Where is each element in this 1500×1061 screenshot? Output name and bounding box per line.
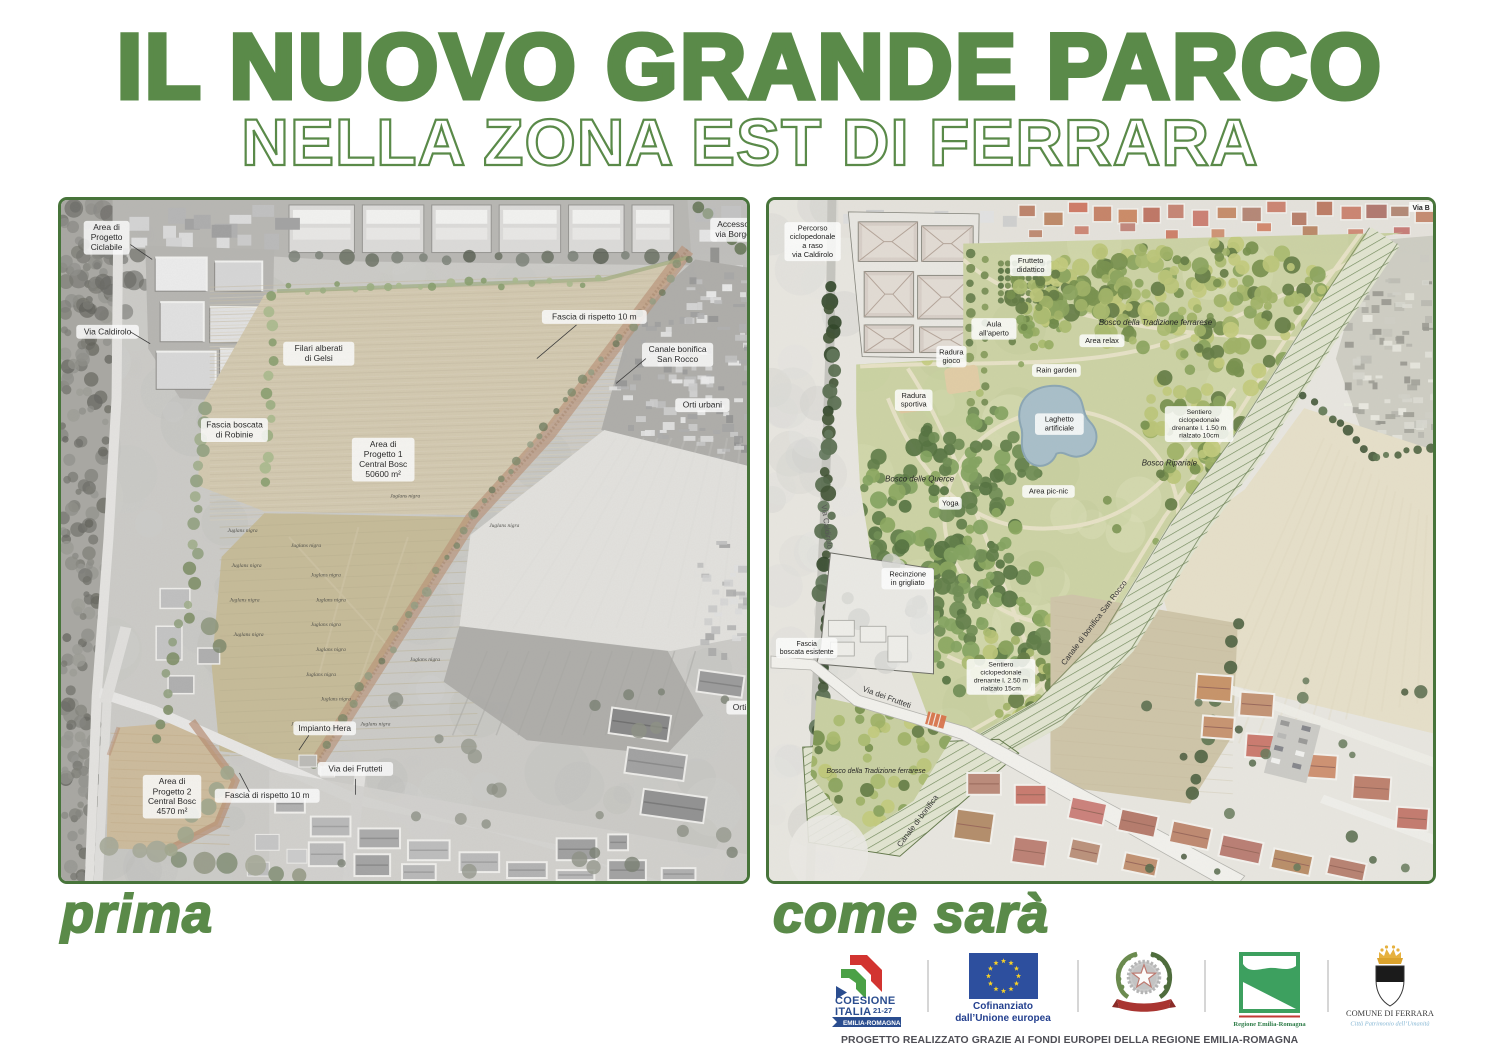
svg-text:Regione Emilia-Romagna: Regione Emilia-Romagna (1233, 1021, 1306, 1028)
svg-text:ITALIA: ITALIA (835, 1006, 871, 1018)
svg-text:Cofinanziato: Cofinanziato (973, 1001, 1033, 1012)
svg-text:dall’Unione europea: dall’Unione europea (955, 1013, 1051, 1024)
svg-text:EMILIA-ROMAGNA: EMILIA-ROMAGNA (843, 1020, 901, 1027)
svg-text:21-27: 21-27 (873, 1006, 892, 1015)
svg-text:COMUNE DI FERRARA: COMUNE DI FERRARA (1346, 1009, 1434, 1018)
svg-text:Città Patrimonio dell’Umanità: Città Patrimonio dell’Umanità (1350, 1021, 1429, 1028)
